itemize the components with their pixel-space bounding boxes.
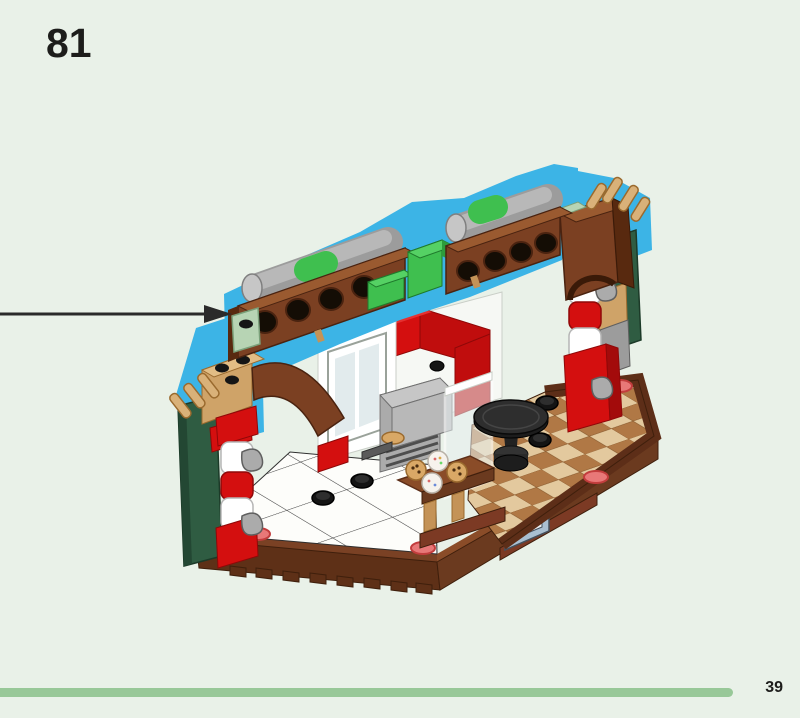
page-number: 39 xyxy=(765,679,783,697)
callout-arrow xyxy=(0,305,232,323)
striped-column-left xyxy=(216,406,258,568)
progress-bar xyxy=(0,688,733,697)
instruction-page: 81 xyxy=(0,0,800,718)
step-diagram xyxy=(0,0,800,718)
sage-bracket xyxy=(232,308,260,352)
